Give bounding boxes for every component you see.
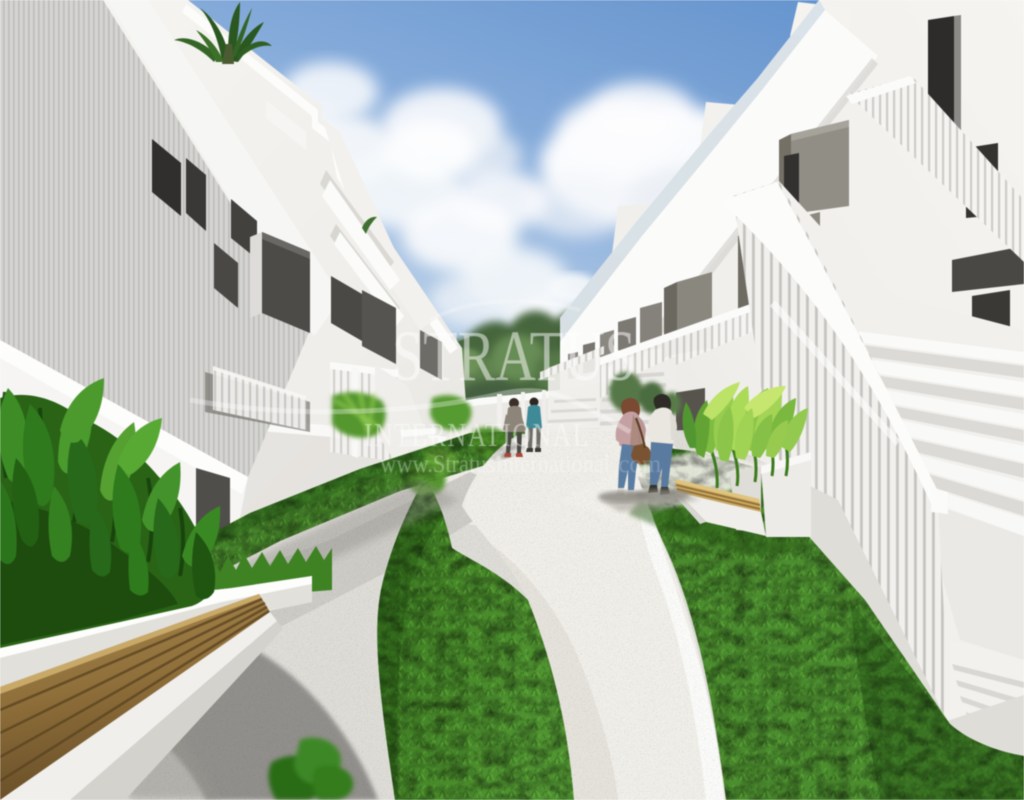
svg-text:www.StratusInternational: www.StratusInternational: [380, 451, 610, 478]
svg-text:.com: .com: [612, 451, 662, 478]
svg-text:INTERNATIONAL: INTERNATIONAL: [364, 417, 590, 454]
svg-text:STRATUS: STRATUS: [392, 316, 636, 396]
